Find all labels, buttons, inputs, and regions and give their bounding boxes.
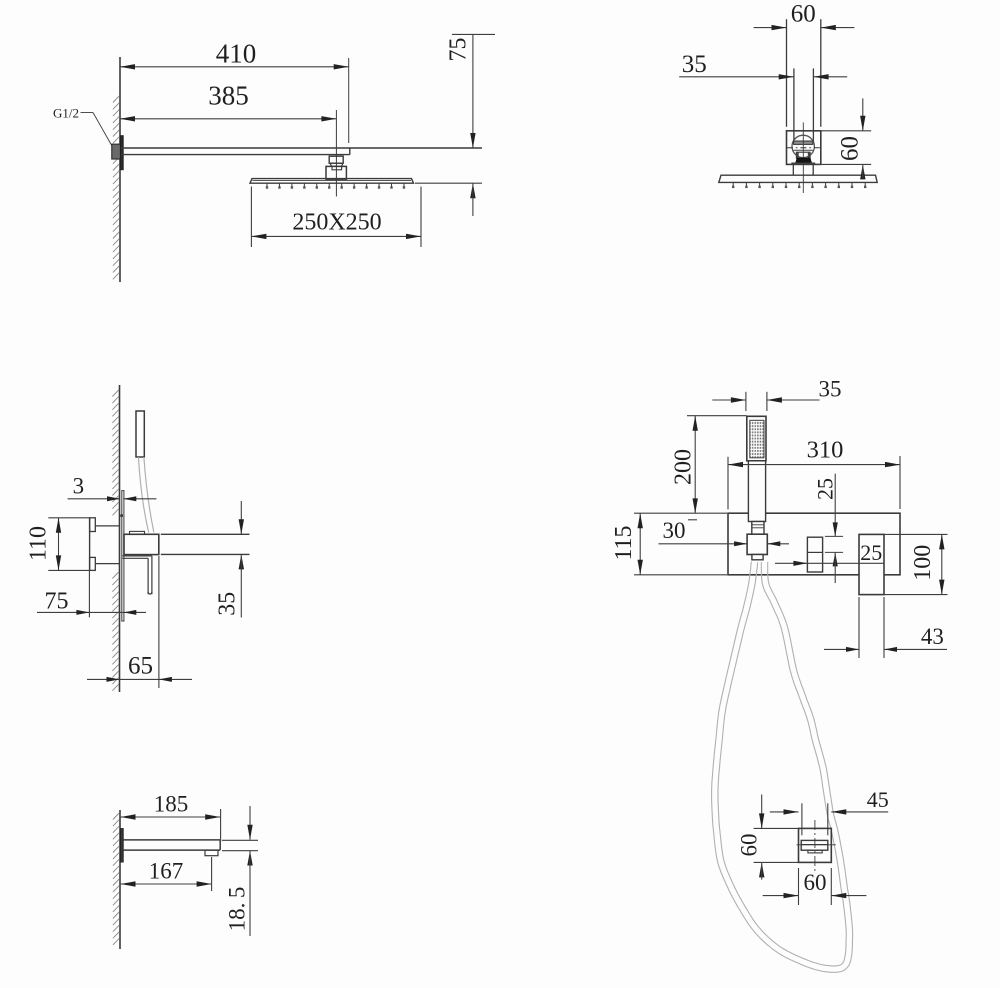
svg-text:45: 45 bbox=[867, 787, 889, 812]
svg-text:35: 35 bbox=[215, 592, 241, 616]
svg-text:110: 110 bbox=[26, 526, 52, 561]
svg-text:310: 310 bbox=[807, 436, 844, 463]
svg-text:43: 43 bbox=[921, 624, 944, 649]
svg-text:410: 410 bbox=[216, 39, 257, 69]
svg-text:200: 200 bbox=[671, 449, 697, 485]
svg-text:25: 25 bbox=[812, 478, 837, 500]
svg-text:385: 385 bbox=[208, 81, 249, 111]
svg-text:25: 25 bbox=[860, 540, 882, 565]
svg-text:75: 75 bbox=[45, 589, 69, 615]
svg-text:35: 35 bbox=[819, 377, 842, 402]
svg-text:167: 167 bbox=[149, 859, 184, 884]
svg-text:185: 185 bbox=[154, 792, 189, 817]
svg-text:30: 30 bbox=[663, 518, 686, 543]
svg-text:250X250: 250X250 bbox=[292, 209, 381, 235]
svg-text:G1/2: G1/2 bbox=[53, 106, 79, 121]
svg-text:35: 35 bbox=[682, 51, 707, 78]
svg-text:60: 60 bbox=[804, 870, 827, 895]
svg-text:100: 100 bbox=[910, 545, 936, 581]
svg-text:18. 5: 18. 5 bbox=[225, 887, 250, 932]
svg-text:60: 60 bbox=[836, 136, 863, 161]
svg-text:115: 115 bbox=[611, 525, 637, 560]
svg-text:60: 60 bbox=[791, 1, 816, 28]
svg-text:60: 60 bbox=[736, 834, 761, 857]
svg-text:65: 65 bbox=[128, 653, 153, 680]
svg-text:75: 75 bbox=[445, 38, 471, 62]
svg-text:3: 3 bbox=[73, 474, 85, 499]
